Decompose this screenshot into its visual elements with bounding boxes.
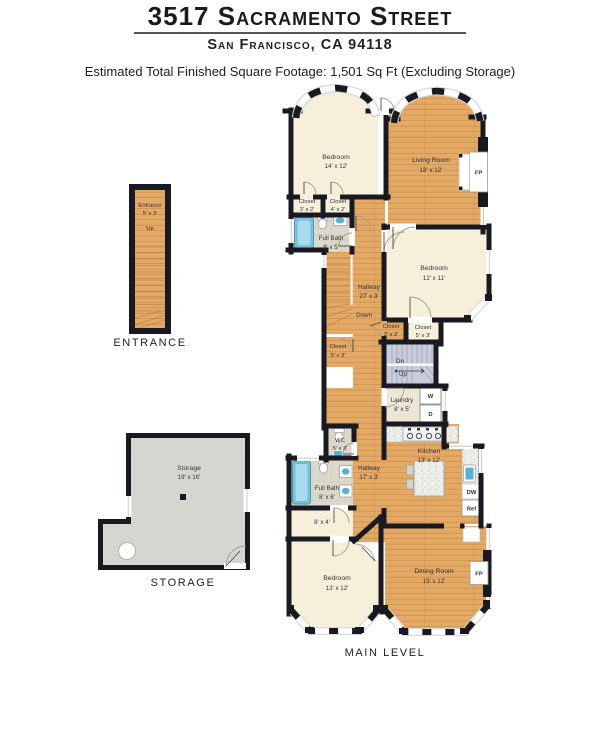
hallway-upper-label: Hallway (358, 284, 381, 291)
bedroom-top-dims: 14' x 12' (325, 163, 348, 170)
floor-plan-svg: Entrance 5' x 3' Up ENTRANCE Storage 19' (0, 0, 600, 731)
closet-d-dims: 3' x 2' (384, 332, 399, 338)
closet-a-label: Closet (299, 199, 316, 205)
bathtub-basin (295, 464, 308, 502)
laundry-label: Laundry (391, 397, 414, 404)
fireplace-label: FP (475, 572, 483, 578)
fireplace-label: FP (475, 171, 483, 177)
main-level-caption: MAIN LEVEL (345, 647, 426, 659)
island-stool (407, 465, 414, 475)
closet-b-dims: 4' x 2' (331, 207, 346, 213)
toilet-icon (320, 463, 328, 473)
kitchen-island (414, 461, 444, 496)
island-stool (407, 479, 414, 489)
toilet-icon (319, 219, 327, 229)
hall-landing-floor (353, 196, 385, 254)
wc-label: WC (335, 438, 345, 444)
storage-dims: 19' x 16' (178, 474, 201, 481)
sink-icon (342, 468, 350, 474)
window (486, 528, 492, 550)
closet-c-floor (324, 337, 353, 367)
sink-icon (336, 218, 345, 224)
hallway-lower-label: Hallway (358, 465, 381, 472)
hallway-upper-dims: 27' x 3' (359, 293, 378, 300)
kitchen-sink-basin (466, 468, 474, 480)
bedroom-bottom-label: Bedroom (323, 575, 351, 582)
stairs-dn-label: Dn (396, 358, 404, 365)
sink-icon (342, 488, 350, 494)
bedroom-mid-dims: 12' x 11' (423, 275, 445, 282)
estimate-note: Estimated Total Finished Square Footage:… (0, 64, 600, 79)
living-room-label: Living Room (412, 157, 450, 164)
storage-plan: Storage 19' x 16' STORAGE (98, 433, 251, 589)
storage-caption: STORAGE (151, 577, 216, 589)
closet-d-label: Closet (383, 324, 400, 330)
dining-builtin (463, 527, 480, 542)
window (479, 449, 485, 473)
bedroom-bottom-dims: 13' x 12' (326, 585, 349, 592)
kitchen-label: Kitchen (418, 448, 441, 455)
storage-label: Storage (177, 465, 201, 472)
page-subtitle: San Francisco, CA 94118 (0, 37, 600, 53)
living-room-dims: 18' x 12' (420, 167, 443, 174)
laundry-dims: 8' x 5' (394, 406, 410, 413)
bedroom-top-floor (294, 88, 378, 196)
entrance-caption: ENTRANCE (113, 337, 186, 349)
closet-e-label: Closet (415, 325, 432, 331)
washer-label: W (428, 394, 434, 400)
full-bath-lower-label: Full Bath (315, 485, 340, 492)
full-bath-upper-dims: 8' x 5' (323, 244, 339, 251)
closet-a-dims: 3' x 2' (300, 207, 315, 213)
hearth (459, 154, 470, 190)
entrance-up-label: Up (146, 226, 153, 232)
bedroom-mid-floor (385, 226, 489, 319)
dryer-label: D (428, 412, 432, 418)
header: 3517 Sacramento Street San Francisco, CA… (0, 0, 600, 79)
hallway-lower-dims: 17' x 3' (359, 474, 378, 481)
entrance-label: Entrance (138, 203, 161, 209)
fridge-label: Ref (467, 507, 476, 513)
bedroom-top-label: Bedroom (322, 154, 350, 161)
storage-opening-right (244, 489, 251, 512)
storage-window-left (125, 496, 132, 517)
storage-post (180, 494, 186, 500)
hallway-down-label: Down (356, 312, 372, 319)
window (486, 250, 492, 274)
hall-wc-floor (324, 388, 353, 426)
window (322, 255, 327, 268)
full-bath-lower-dims: 8' x 6' (319, 494, 335, 501)
window (443, 391, 449, 411)
window (289, 219, 295, 243)
window (297, 456, 319, 462)
dining-room-dims: 15' x 12' (423, 578, 446, 585)
dishwasher-label: DW (467, 490, 477, 496)
entrance-plan: Entrance 5' x 3' Up ENTRANCE (113, 184, 186, 349)
nook-dims: 8' x 4' (314, 519, 330, 526)
dining-room-label: Dining Room (414, 568, 454, 575)
main-level-plan: DW Ref W D (285, 88, 492, 659)
page-title: 3517 Sacramento Street (134, 0, 467, 34)
stairs-up-label: Up (399, 371, 407, 378)
closet-e-dims: 5' x 3' (416, 333, 431, 339)
closet-c-label: Closet (330, 344, 347, 350)
water-heater-icon (119, 543, 136, 560)
closet-c-dims: 5' x 3' (331, 353, 346, 359)
bedroom-mid-label: Bedroom (420, 265, 448, 272)
closet-b-label: Closet (330, 199, 347, 205)
wc-dims: 5' x 3' (333, 446, 348, 452)
entrance-dims: 5' x 3' (143, 211, 158, 217)
bathtub-basin (297, 220, 311, 246)
kitchen-dims: 13' x 12' (418, 457, 441, 464)
storage-door-gap (224, 563, 246, 569)
full-bath-upper-label: Full Bath (319, 235, 344, 242)
window (449, 444, 473, 450)
floor-plan-page: 3517 Sacramento Street San Francisco, CA… (0, 0, 600, 731)
